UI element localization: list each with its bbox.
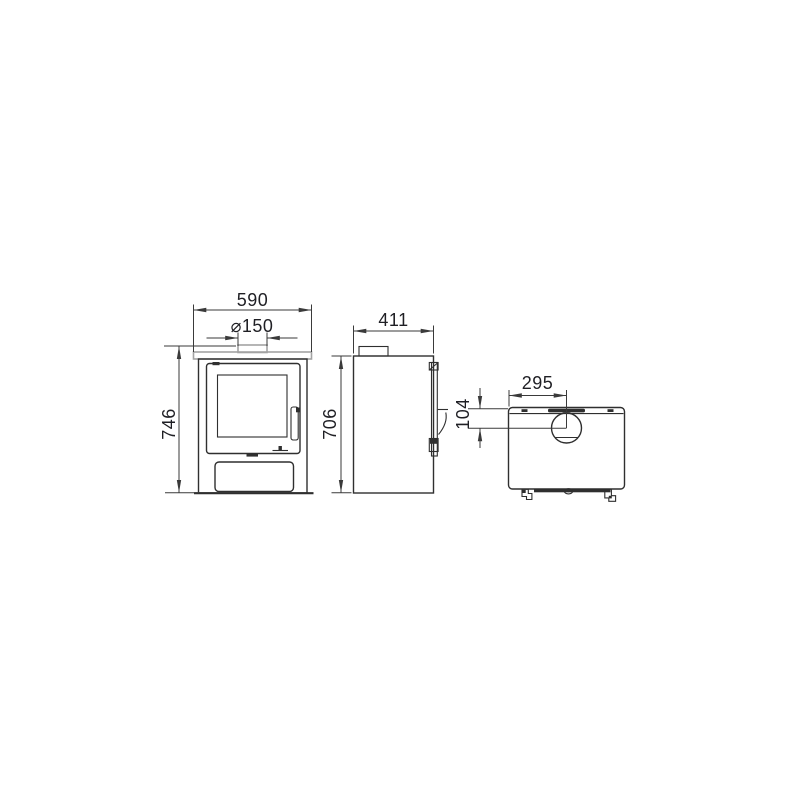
dim-flue-position-y-group (468, 388, 567, 448)
dim-side-height-label: 706 (321, 402, 339, 446)
door-hinge-mark (213, 362, 220, 365)
air-control-knob (279, 446, 282, 451)
rear-tick-right (608, 409, 614, 412)
handle-latch-mark (296, 408, 300, 413)
center-bolt-core (567, 490, 570, 492)
drawing-svg (0, 0, 800, 800)
front-ash-drawer (215, 462, 294, 492)
right-foot-mark (609, 496, 612, 499)
door-bottom-mark (247, 454, 259, 457)
rear-tick-left (522, 409, 528, 412)
dim-flue-diameter-label: ⌀150 (226, 317, 278, 335)
side-flue-collar (359, 347, 388, 357)
front-door-glass (218, 375, 288, 437)
dim-front-width-label: 590 (231, 291, 275, 309)
side-view (354, 347, 449, 494)
side-door-handle-curve (439, 413, 447, 435)
dim-flue-position-y-label: 104 (454, 392, 472, 436)
dim-front-height-label: 746 (160, 402, 178, 446)
door-hinge-bottom-mark (430, 439, 437, 444)
side-body (354, 356, 434, 493)
front-door (207, 364, 301, 454)
front-view (194, 345, 314, 493)
stove-dimensional-drawing: 590 ⌀150 746 411 706 295 104 (0, 0, 800, 800)
dim-flue-position-x-label: 295 (516, 374, 560, 392)
dim-side-depth-label: 411 (372, 311, 416, 329)
left-foot-mark (523, 490, 526, 493)
